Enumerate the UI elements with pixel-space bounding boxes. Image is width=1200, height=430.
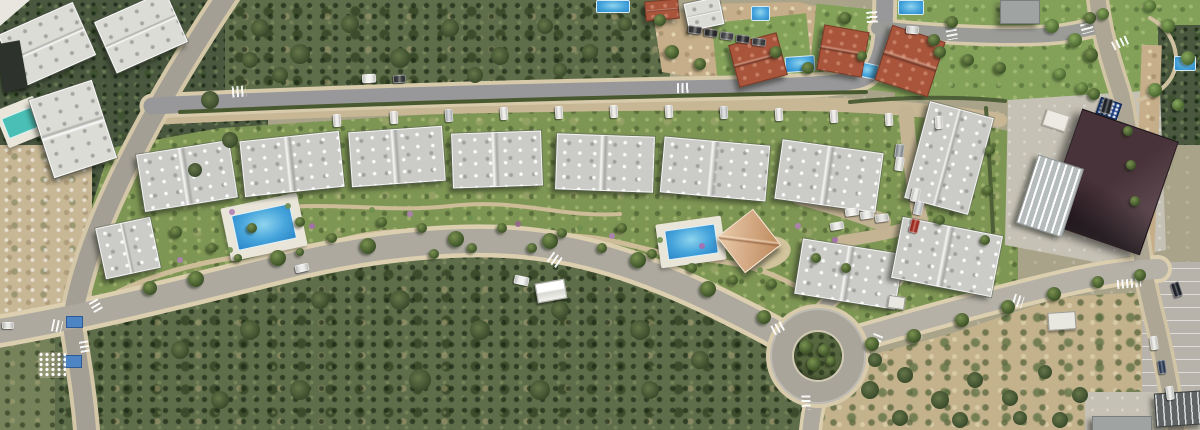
communal-pool-east: [655, 216, 726, 269]
car-21: [894, 156, 905, 171]
tree-16: [955, 313, 969, 327]
car-10: [830, 110, 839, 124]
car-1: [333, 114, 342, 128]
car-27: [875, 213, 890, 223]
flowering-shrub-14: [177, 257, 183, 263]
tree-10: [799, 340, 813, 354]
tree-72: [983, 185, 993, 195]
scrub-clump-80: [1038, 365, 1052, 379]
flowering-shrub-12: [657, 237, 663, 243]
car-8: [720, 106, 729, 120]
tree-50: [207, 243, 217, 253]
tree-11: [818, 344, 830, 356]
tree-33: [1054, 68, 1066, 80]
car-35: [294, 263, 309, 274]
tree-27: [1045, 19, 1059, 33]
tree-53: [327, 233, 337, 243]
scrub-clump-93: [537, 18, 553, 34]
car-12: [935, 116, 944, 130]
scrub-clump-76: [897, 367, 913, 383]
tree-66: [767, 279, 777, 289]
scrub-clump-96: [272, 67, 288, 83]
flowering-shrub-6: [699, 243, 705, 249]
scrub-clump-87: [251, 19, 269, 37]
tree-1: [143, 281, 157, 295]
tree-65: [728, 275, 738, 285]
flowering-shrub-1: [229, 209, 235, 215]
tree-35: [1148, 83, 1162, 97]
tree-26: [1130, 196, 1140, 206]
car-26: [860, 210, 875, 220]
crosswalk-4: [946, 29, 959, 41]
crosswalk-12: [801, 395, 810, 409]
modern-villa-3: [29, 80, 117, 178]
scrub-clump-89: [341, 15, 359, 33]
modern-villa-2: [94, 0, 188, 73]
scrub-clump-88: [290, 44, 310, 64]
tree-23: [1088, 88, 1100, 100]
tree-12: [807, 357, 821, 371]
tree-49: [170, 226, 182, 238]
tree-34: [1076, 82, 1088, 94]
scrub-clump-91: [441, 19, 459, 37]
tree-41: [694, 58, 706, 70]
tree-36: [1172, 99, 1184, 111]
small-shed-2: [887, 295, 906, 310]
tree-63: [647, 249, 657, 259]
scrub-clump-77: [931, 391, 949, 409]
tree-43: [802, 62, 814, 74]
tree-18: [1047, 287, 1061, 301]
tree-37: [934, 46, 946, 58]
scrub-clump-78: [967, 372, 983, 388]
aerial-photo-residential-development: [0, 0, 1200, 430]
car-4: [500, 107, 509, 121]
scrub-clump-110: [211, 391, 229, 409]
communal-pool-west-water: [231, 203, 297, 251]
apartment-block-4: [348, 126, 446, 187]
crosswalk-3: [866, 11, 878, 24]
tree-31: [1161, 19, 1175, 33]
tree-40: [665, 45, 679, 59]
scrub-clump-98: [553, 63, 567, 77]
flowering-shrub-7: [795, 223, 801, 229]
tree-13: [826, 356, 836, 366]
tree-44: [839, 12, 851, 24]
villa-pool-5: [898, 0, 924, 15]
car-11: [885, 113, 894, 127]
apartment-block-3: [239, 131, 344, 197]
flowering-shrub-4: [515, 221, 521, 227]
car-33: [1170, 281, 1183, 298]
tree-9: [757, 310, 771, 324]
car-31: [1165, 386, 1175, 401]
crosswalk-9: [79, 340, 90, 354]
crosswalk-8: [51, 319, 63, 333]
tree-48: [654, 14, 666, 26]
tree-67: [811, 253, 821, 263]
flowering-shrub-15: [832, 237, 838, 243]
apartment-block-2: [136, 140, 238, 212]
industrial-strip-2: [1092, 416, 1152, 430]
car-17: [720, 31, 735, 41]
car-25: [845, 207, 860, 217]
tree-52: [295, 217, 305, 227]
villa-pool-6: [596, 0, 630, 13]
flowering-shrub-3: [407, 211, 413, 217]
tree-42: [770, 46, 782, 58]
scrub-clump-83: [952, 412, 968, 428]
scrub-clump-101: [390, 290, 410, 310]
tree-21: [1084, 12, 1096, 24]
scrub-clump-90: [390, 48, 410, 68]
scrub-clump-100: [311, 291, 329, 309]
tree-47: [946, 16, 958, 28]
flowering-shrub-16: [757, 267, 763, 273]
scrub-clump-92: [491, 47, 509, 65]
tree-24: [1123, 126, 1133, 136]
apiary-boxes: [38, 352, 66, 378]
scrub-clump-114: [242, 52, 258, 68]
tree-61: [597, 243, 607, 253]
flowering-shrub-2: [309, 223, 315, 229]
tree-69: [935, 215, 945, 225]
flowering-shrub-13: [227, 247, 233, 253]
tree-7: [630, 252, 646, 268]
tree-73: [234, 254, 242, 262]
apartment-block-7: [660, 136, 770, 201]
scrub-clump-97: [467, 67, 483, 83]
crosswalk-7: [89, 298, 104, 313]
tree-71: [985, 145, 995, 155]
car-16: [704, 28, 719, 38]
crosswalk-6: [1111, 35, 1131, 51]
tree-70: [980, 235, 990, 245]
communal-pool-west: [220, 192, 308, 261]
crosswalk-2: [677, 83, 689, 93]
crosswalk-10: [547, 252, 564, 269]
industrial-strip-1: [1154, 390, 1200, 427]
tree-3: [270, 250, 286, 266]
car-23: [913, 200, 925, 216]
tree-59: [527, 243, 537, 253]
flowering-shrub-5: [609, 233, 615, 239]
flowering-shrub-10: [467, 215, 473, 221]
tree-38: [962, 54, 974, 66]
tree-51: [247, 223, 257, 233]
small-gray-building: [1000, 0, 1040, 24]
car-37: [2, 322, 14, 329]
tree-56: [429, 249, 439, 259]
tree-39: [994, 62, 1006, 74]
tree-32: [1181, 51, 1195, 65]
scrub-clump-113: [222, 132, 238, 148]
scrub-clump-108: [641, 381, 659, 399]
car-3: [445, 109, 454, 123]
car-28: [829, 221, 844, 231]
scrub-clump-104: [630, 320, 650, 340]
car-30: [1157, 360, 1167, 375]
communal-pool-east-water: [664, 224, 719, 261]
tree-15: [907, 329, 921, 343]
tree-4: [360, 238, 376, 254]
scrub-clump-103: [551, 301, 569, 319]
car-9: [775, 108, 784, 122]
car-14: [393, 75, 406, 84]
tree-58: [497, 223, 507, 233]
scrub-clump-102: [470, 320, 490, 340]
scrub-clump-75: [861, 381, 879, 399]
scrub-clump-111: [691, 351, 709, 369]
tree-19: [1092, 276, 1104, 288]
flowering-shrub-11: [577, 225, 583, 231]
scrub-clump-85: [1052, 412, 1068, 428]
tree-46: [928, 34, 940, 46]
tree-17: [1001, 300, 1015, 314]
car-5: [555, 106, 564, 120]
tree-64: [687, 263, 697, 273]
scrub-clump-86: [868, 353, 882, 367]
small-white-building: [1042, 109, 1070, 133]
apartment-block-6: [555, 133, 655, 192]
scrub-clump-107: [530, 380, 550, 400]
apartment-block-5: [451, 130, 543, 188]
car-36: [513, 275, 530, 287]
scrub-clump-82: [892, 410, 908, 426]
roundabout-island: [794, 332, 842, 380]
scrub-clump-99: [240, 320, 260, 340]
scrub-clump-94: [582, 44, 598, 60]
tree-28: [1068, 33, 1082, 47]
car-6: [610, 105, 619, 119]
tree-6: [542, 233, 558, 249]
tree-62: [617, 223, 627, 233]
tree-14: [865, 337, 879, 351]
scrub-clump-106: [290, 380, 310, 400]
tree-60: [557, 228, 567, 238]
car-34: [906, 25, 920, 34]
car-29: [1149, 336, 1159, 351]
car-7: [665, 105, 674, 119]
tree-5: [448, 231, 464, 247]
apartment-block-1: [95, 217, 161, 280]
scrub-clump-112: [201, 91, 219, 109]
apartment-block-8: [774, 139, 883, 213]
car-15: [688, 25, 703, 35]
scrub-clump-109: [171, 341, 189, 359]
objects-layer: [0, 0, 1200, 430]
tree-8: [700, 281, 716, 297]
flowering-shrub-9: [369, 207, 375, 213]
scrub-clump-105: [409, 369, 431, 391]
apartment-block-11: [891, 217, 1003, 297]
scrub-clump-95: [618, 17, 632, 31]
tree-45: [857, 51, 867, 61]
scrub-clump-84: [1013, 411, 1027, 425]
small-shed-1: [1047, 311, 1076, 331]
tree-25: [1126, 160, 1136, 170]
tree-2: [188, 271, 204, 287]
car-2: [390, 111, 399, 125]
tree-22: [1084, 48, 1098, 62]
scrub-clump-81: [1072, 387, 1088, 403]
tree-29: [1097, 8, 1109, 20]
crosswalk-1: [232, 86, 247, 98]
sales-tent: [534, 279, 567, 304]
tree-20: [1134, 269, 1146, 281]
tree-55: [417, 223, 427, 233]
tree-54: [377, 217, 387, 227]
blue-tarp-1: [66, 316, 83, 328]
tree-30: [1144, 0, 1156, 12]
scrub-clump-79: [1002, 390, 1018, 406]
flowering-shrub-8: [285, 203, 291, 209]
scrub-clump-115: [188, 163, 202, 177]
tree-57: [467, 243, 477, 253]
car-13: [362, 74, 376, 84]
tree-68: [841, 263, 851, 273]
tree-74: [296, 248, 304, 256]
villa-pool-2: [751, 6, 770, 21]
